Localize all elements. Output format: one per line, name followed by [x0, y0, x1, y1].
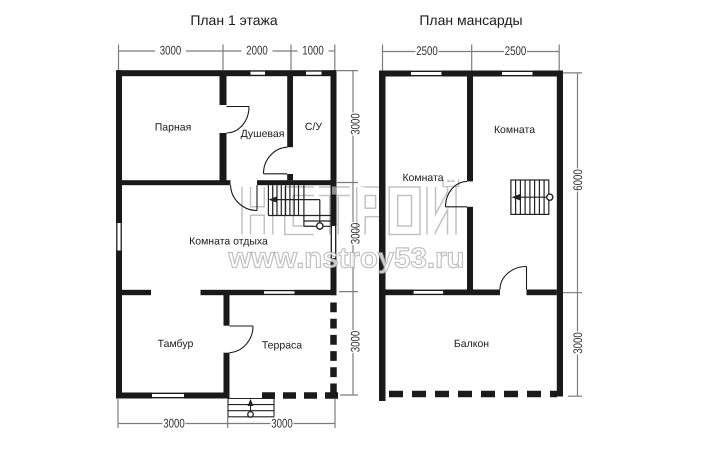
svg-text:1000: 1000 — [302, 43, 324, 57]
svg-text:Терраса: Терраса — [262, 340, 302, 352]
svg-text:2500: 2500 — [505, 44, 527, 58]
svg-text:План 1 этажа: План 1 этажа — [190, 12, 278, 28]
svg-text:2500: 2500 — [416, 44, 438, 58]
svg-text:Балкон: Балкон — [454, 338, 489, 350]
svg-text:3000: 3000 — [571, 332, 585, 354]
svg-text:Душевая: Душевая — [241, 128, 285, 140]
svg-text:Тамбур: Тамбур — [158, 338, 194, 350]
svg-text:2000: 2000 — [246, 43, 268, 57]
svg-text:3000: 3000 — [271, 416, 293, 430]
svg-text:www.nstroy53.ru: www.nstroy53.ru — [227, 243, 464, 275]
svg-text:6000: 6000 — [571, 169, 585, 191]
svg-text:План мансарды: План мансарды — [419, 12, 522, 28]
svg-text:3000: 3000 — [349, 113, 363, 135]
svg-text:3000: 3000 — [349, 331, 363, 353]
svg-text:Комната: Комната — [494, 124, 535, 136]
svg-text:3000: 3000 — [349, 223, 363, 245]
svg-text:С/У: С/У — [305, 121, 323, 133]
svg-text:Парная: Парная — [155, 122, 192, 134]
svg-text:3000: 3000 — [160, 43, 182, 57]
svg-text:3000: 3000 — [163, 416, 185, 430]
svg-text:Комната: Комната — [402, 172, 443, 184]
